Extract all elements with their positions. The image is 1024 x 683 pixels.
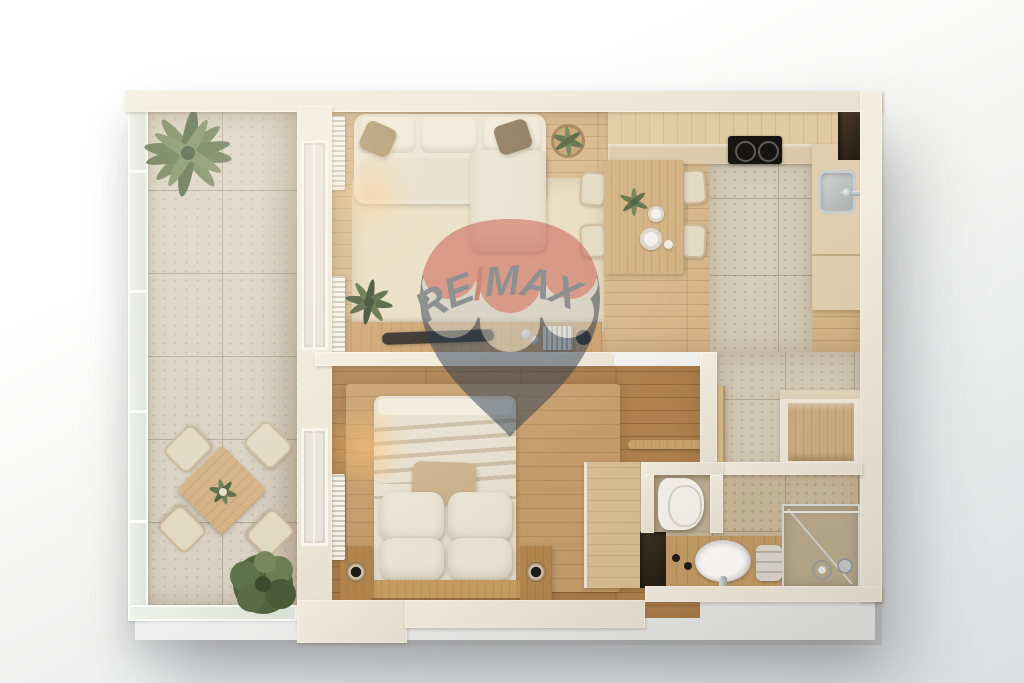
bed-frame-headboard [366,580,524,598]
hall-console-frame [780,390,862,470]
console-books [543,326,573,350]
burner [758,141,779,162]
palm-plant [132,103,244,203]
bed-pillow [380,492,444,542]
sofa-back-cushion [420,117,478,153]
kitchen-right-counter [812,144,862,310]
window-mullion [313,143,315,347]
dining-chair [579,223,607,258]
cup [664,240,673,249]
kitchen-upper-counter [608,112,838,146]
window-living [301,140,328,350]
console-chrome-decor [531,336,540,345]
railing-post [128,410,148,413]
floor-plan-render: RE/MAX [0,0,1024,683]
mattress-top [378,399,512,415]
bedroom-desk [584,462,643,588]
console-bowl [576,330,591,345]
speaker-circle [526,562,546,582]
kitchen-shading [710,160,812,352]
vanity-knob [672,554,680,562]
counter-cabinet-line [812,254,862,256]
bath-dark-cabinet [640,532,666,588]
rolled-towels [756,545,782,581]
kitchen-floor [710,160,812,352]
wall-toilet-niche-top [641,462,723,475]
speaker-circle [346,562,366,582]
window-mullion [313,431,315,543]
cooktop [728,136,782,164]
window-blind-stack [330,276,345,356]
toilet [658,478,704,530]
towel-bar [628,440,706,449]
kitchen-faucet-base [842,188,852,198]
plate [640,228,662,250]
wall-toilet-niche-left [641,475,654,533]
console-chrome-decor [521,329,531,339]
shower-enclosure [782,504,860,588]
burner [735,141,756,162]
bed-pillow [380,538,444,580]
sofa-seat-line [360,158,472,200]
wall-toilet-niche-right [710,475,723,533]
basket-plant [547,120,589,162]
railing-post [128,520,148,523]
wall-bottom-middle [405,600,645,628]
bed-pillow [448,538,512,580]
hall-console-drawer [788,403,854,461]
sofa-chaise [470,150,546,252]
shower-glass [782,504,860,588]
wall-top [125,90,882,112]
window-bedroom [301,428,328,546]
wall-divider-living-bedroom [315,352,612,366]
dining-chair [579,171,607,207]
wall-bottom-left [297,600,407,643]
plate [648,206,664,222]
railing-post [128,290,148,293]
hall-console-shelf-edge [780,390,862,399]
console-plant [338,272,400,332]
wall-bathroom-top [717,462,862,475]
table-plant [205,475,241,509]
vanity-knob [684,562,692,570]
bed-pillow [448,492,512,542]
wall-bottom-right [645,586,882,602]
wall-bedroom-hallway [700,352,717,472]
wall-right [860,90,882,602]
window-blind-stack [330,116,345,190]
toilet-seat [668,485,702,527]
nightstand [520,546,552,600]
